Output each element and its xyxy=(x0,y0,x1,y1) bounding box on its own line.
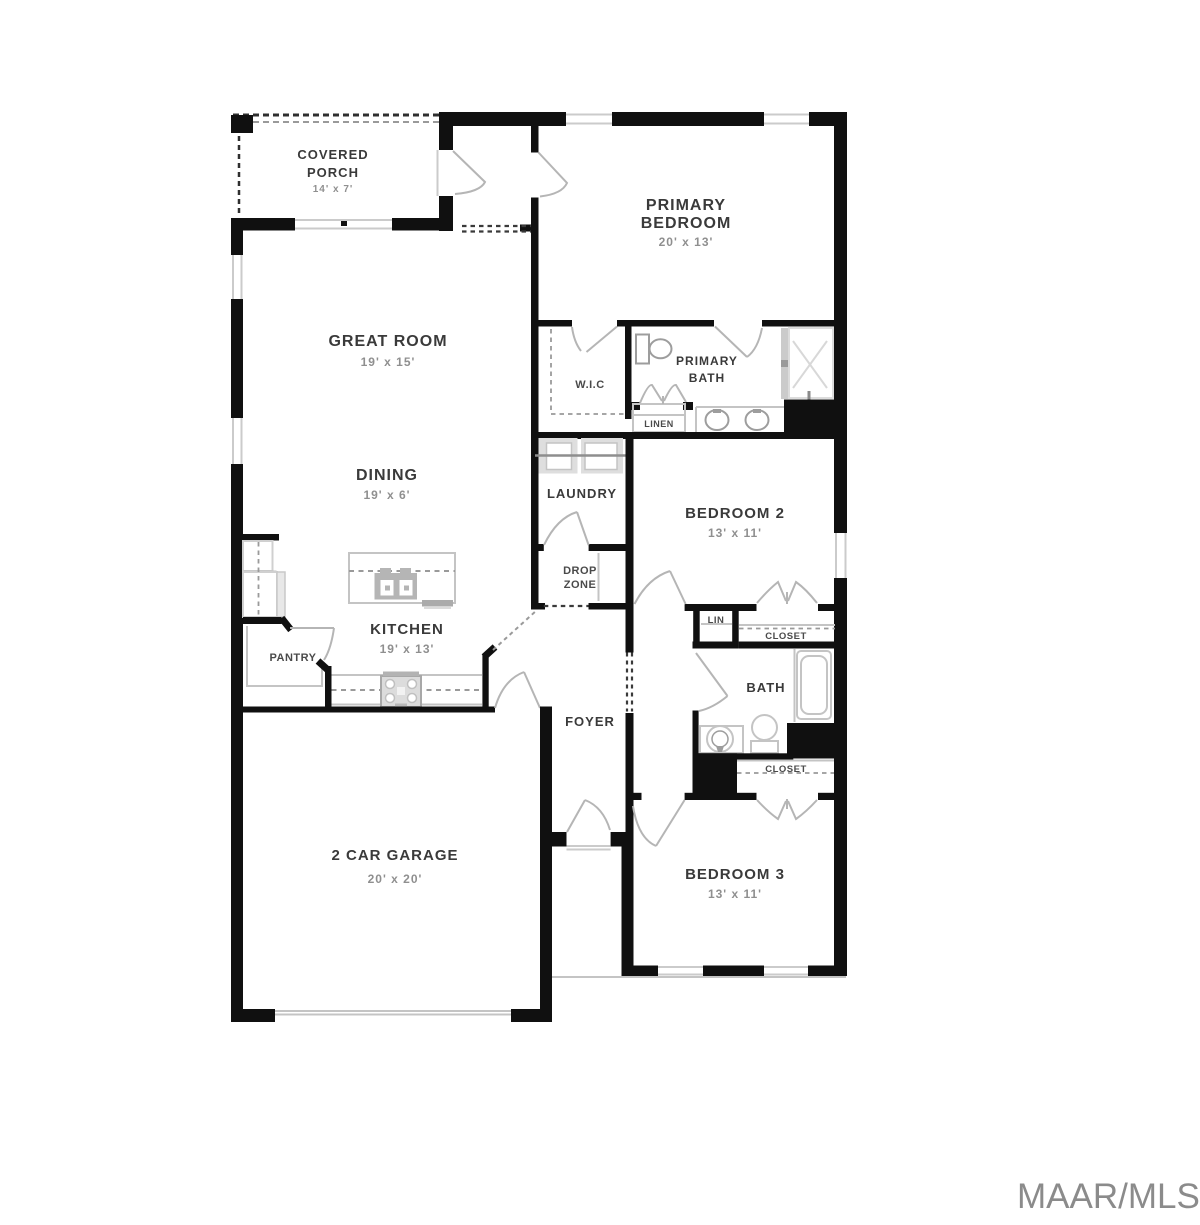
svg-text:PORCH: PORCH xyxy=(307,165,359,180)
svg-text:BEDROOM 3: BEDROOM 3 xyxy=(685,866,785,883)
svg-text:CLOSET: CLOSET xyxy=(765,764,807,775)
svg-text:W.I.C: W.I.C xyxy=(575,379,604,391)
svg-text:2 CAR GARAGE: 2 CAR GARAGE xyxy=(331,847,458,864)
svg-text:13' x 11': 13' x 11' xyxy=(708,526,762,540)
svg-text:20' x 13': 20' x 13' xyxy=(659,235,714,249)
svg-text:FOYER: FOYER xyxy=(565,714,615,729)
svg-text:BEDROOM 2: BEDROOM 2 xyxy=(685,505,785,522)
svg-text:20' x 20': 20' x 20' xyxy=(368,872,423,886)
svg-text:BATH: BATH xyxy=(689,371,725,385)
svg-text:LINEN: LINEN xyxy=(644,419,674,429)
svg-text:13' x 11': 13' x 11' xyxy=(708,887,762,901)
svg-text:ZONE: ZONE xyxy=(564,579,597,591)
svg-text:LIN: LIN xyxy=(708,615,725,626)
svg-text:14' x 7': 14' x 7' xyxy=(313,184,354,195)
svg-text:MAAR/MLS: MAAR/MLS xyxy=(1017,1177,1200,1216)
svg-text:CLOSET: CLOSET xyxy=(765,631,807,642)
svg-text:19' x 15': 19' x 15' xyxy=(361,355,416,369)
svg-text:KITCHEN: KITCHEN xyxy=(370,621,444,638)
svg-text:LAUNDRY: LAUNDRY xyxy=(547,486,617,501)
svg-text:GREAT ROOM: GREAT ROOM xyxy=(328,333,447,350)
svg-text:PRIMARY: PRIMARY xyxy=(646,197,726,214)
svg-text:PRIMARY: PRIMARY xyxy=(676,354,738,368)
svg-text:19' x 13': 19' x 13' xyxy=(380,642,435,656)
svg-text:BEDROOM: BEDROOM xyxy=(641,215,732,232)
svg-text:19' x 6': 19' x 6' xyxy=(363,488,410,502)
svg-text:PANTRY: PANTRY xyxy=(270,652,317,664)
svg-text:DROP: DROP xyxy=(563,565,597,577)
svg-text:COVERED: COVERED xyxy=(297,147,368,162)
svg-text:BATH: BATH xyxy=(746,680,785,695)
svg-text:DINING: DINING xyxy=(356,467,418,484)
